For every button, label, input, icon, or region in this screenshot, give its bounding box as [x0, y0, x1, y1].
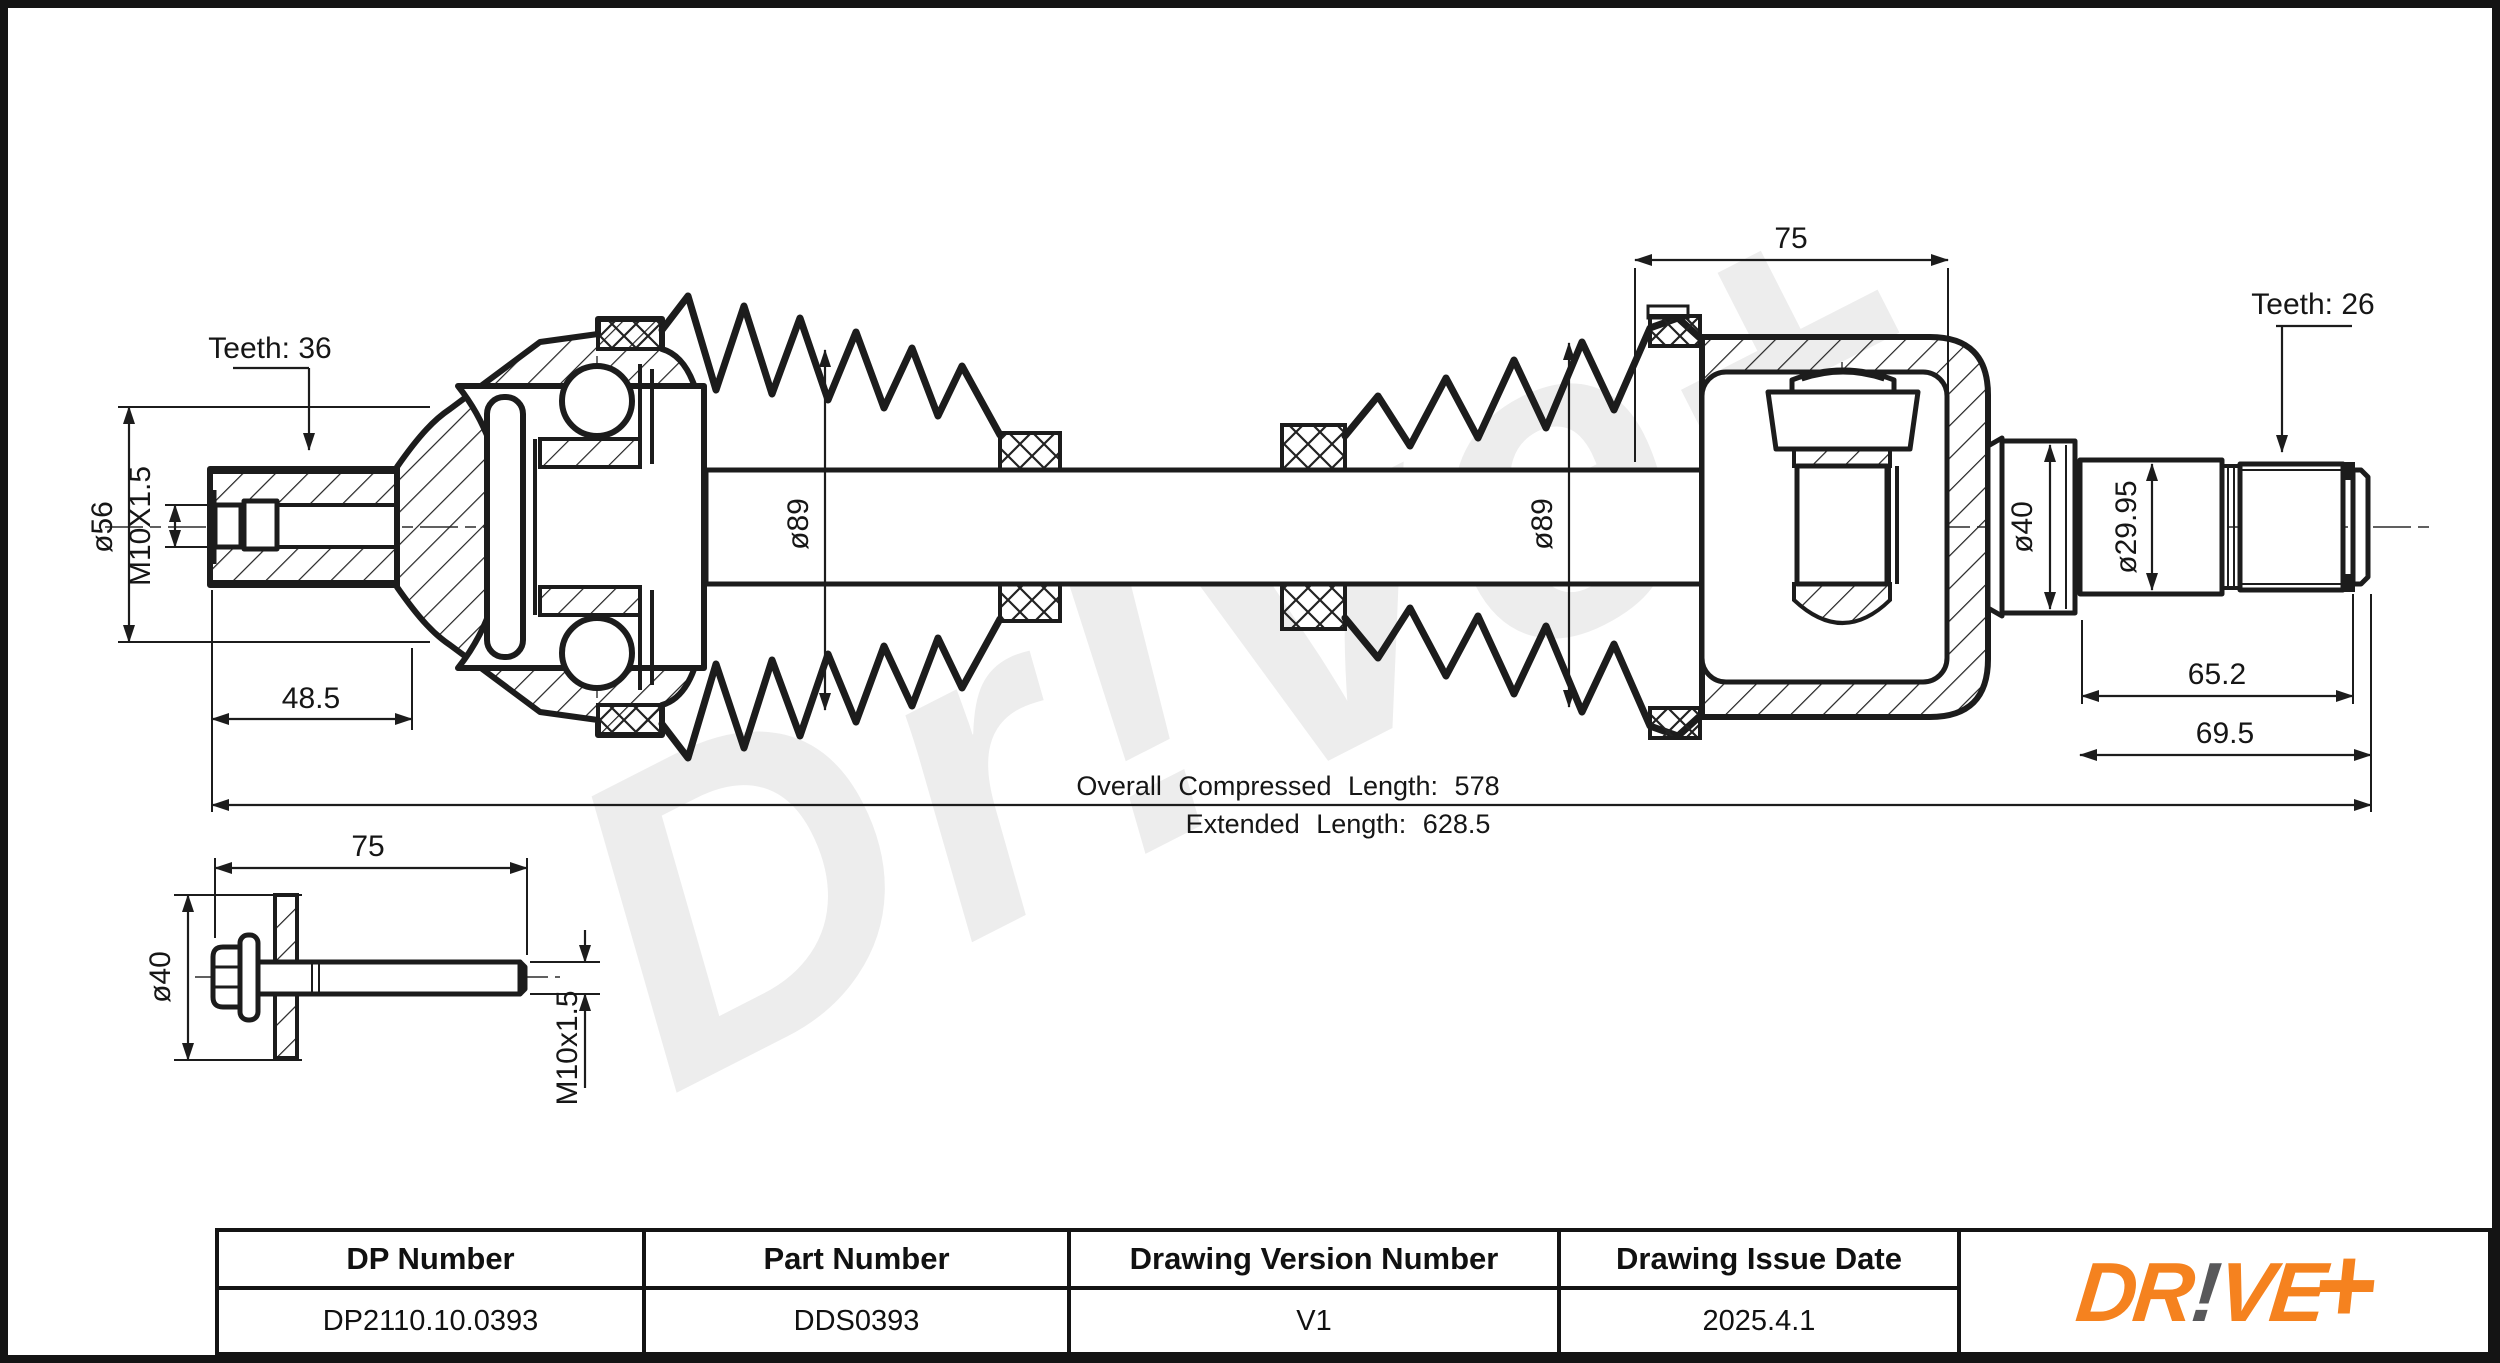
label-48-5: 48.5	[282, 682, 340, 715]
label-75-top: 75	[1774, 222, 1807, 255]
table-header: Drawing Version Number	[1071, 1232, 1557, 1290]
table-header: Part Number	[646, 1232, 1067, 1290]
label-bolt-dia40: ø40	[144, 951, 177, 1003]
table-value: V1	[1071, 1290, 1557, 1352]
table-value: 2025.4.1	[1561, 1290, 1957, 1352]
table-col-drawing-version: Drawing Version Number V1	[1067, 1232, 1557, 1352]
label-extended-length: Extended Length: 628.5	[1186, 809, 1491, 839]
label-dia89-left: ø89	[782, 498, 815, 550]
label-bolt-m10: M10x1.5	[551, 990, 584, 1105]
technical-drawing: Dr!ve+	[0, 0, 2500, 1363]
label-teeth-left: Teeth: 36	[208, 332, 331, 365]
table-value: DDS0393	[646, 1290, 1067, 1352]
driveplus-logo: DR ! VE +	[2072, 1245, 2376, 1339]
label-overall-length: Overall Compressed Length: 578	[1076, 771, 1499, 801]
label-dia29-95: ø29.95	[2110, 480, 2143, 573]
drawing-page: Dr!ve+	[0, 0, 2500, 1363]
label-dia56: ø56	[86, 501, 119, 553]
table-col-dp-number: DP Number DP2110.10.0393	[219, 1232, 642, 1352]
label-69-5: 69.5	[2196, 717, 2254, 750]
label-bolt-75: 75	[351, 830, 384, 863]
table-col-part-number: Part Number DDS0393	[642, 1232, 1067, 1352]
table-col-issue-date: Drawing Issue Date 2025.4.1	[1557, 1232, 1957, 1352]
bolt-view: 75 ø40 M10x1.5	[144, 830, 600, 1106]
table-value: DP2110.10.0393	[219, 1290, 642, 1352]
table-header: Drawing Issue Date	[1561, 1232, 1957, 1290]
label-dia40-right: ø40	[2006, 501, 2039, 553]
title-block-table: DP Number DP2110.10.0393 Part Number DDS…	[215, 1228, 2492, 1356]
label-65-2: 65.2	[2188, 658, 2246, 691]
logo-plus: +	[2308, 1231, 2378, 1339]
label-dia89-right: ø89	[1526, 498, 1559, 550]
table-header: DP Number	[219, 1232, 642, 1290]
logo-dr: DR	[2073, 1250, 2195, 1334]
label-teeth-right: Teeth: 26	[2251, 288, 2374, 321]
label-m10-left: M10X1.5	[124, 466, 157, 586]
brand-logo-cell: DR ! VE +	[1957, 1232, 2488, 1352]
